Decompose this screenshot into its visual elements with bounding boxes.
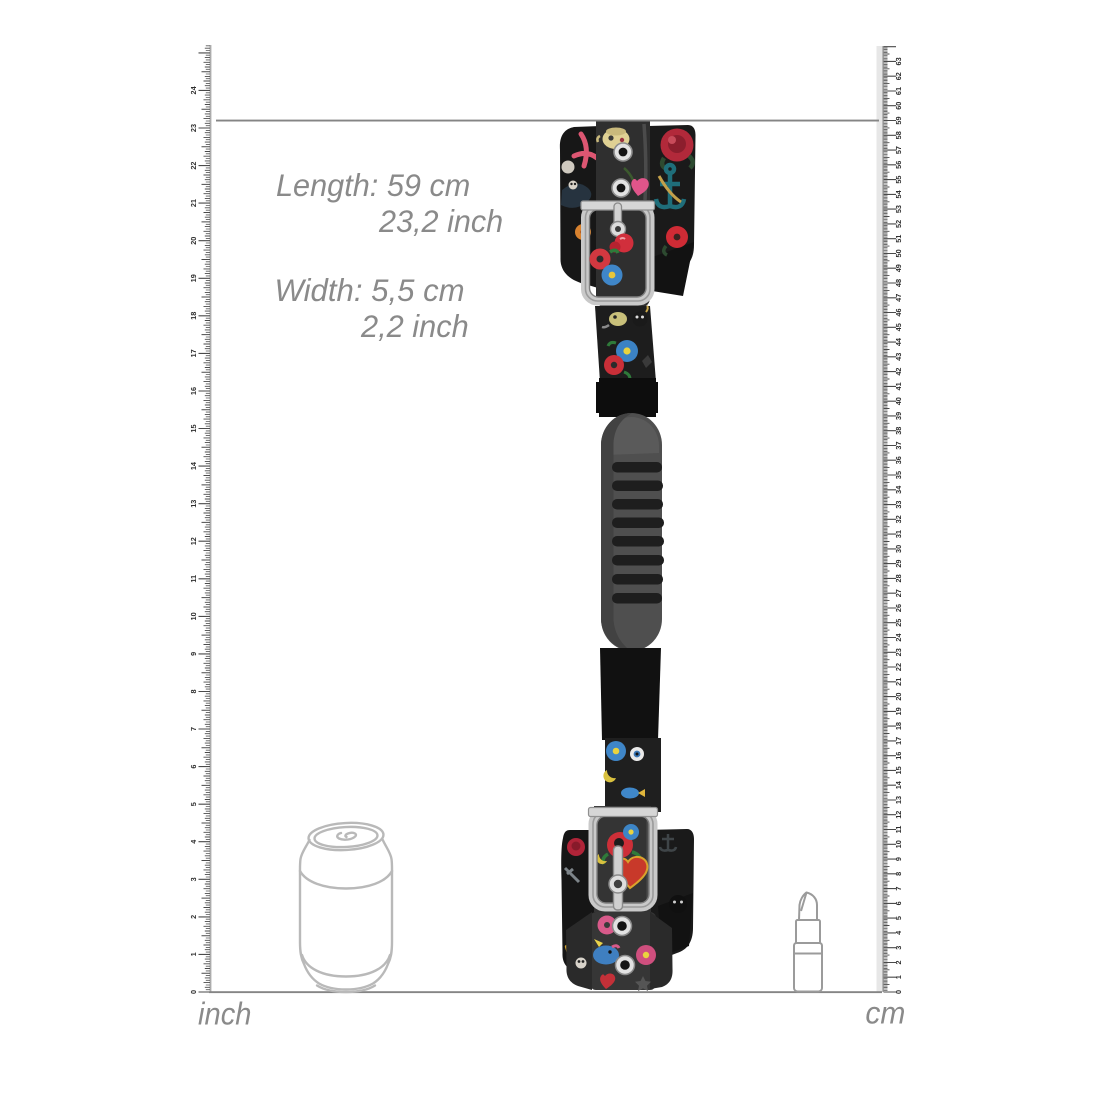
svg-text:9: 9	[189, 652, 198, 656]
svg-text:6: 6	[894, 901, 903, 905]
svg-text:1: 1	[894, 975, 903, 979]
svg-text:8: 8	[189, 689, 198, 693]
svg-text:16: 16	[894, 752, 903, 760]
svg-text:3: 3	[189, 877, 198, 881]
svg-text:22: 22	[894, 663, 903, 671]
svg-text:40: 40	[894, 397, 903, 405]
svg-text:34: 34	[894, 485, 903, 494]
svg-text:63: 63	[894, 57, 903, 65]
svg-text:60: 60	[894, 102, 903, 110]
svg-text:47: 47	[894, 294, 903, 302]
svg-text:12: 12	[189, 537, 198, 545]
svg-text:11: 11	[894, 826, 903, 834]
svg-text:44: 44	[894, 337, 903, 346]
svg-text:1: 1	[189, 952, 198, 956]
svg-text:54: 54	[894, 189, 903, 198]
svg-text:29: 29	[894, 560, 903, 568]
svg-text:18: 18	[189, 312, 198, 320]
svg-text:19: 19	[189, 274, 198, 282]
svg-text:24: 24	[894, 633, 903, 642]
svg-text:61: 61	[894, 87, 903, 95]
svg-text:39: 39	[894, 412, 903, 420]
svg-text:0: 0	[894, 990, 903, 994]
svg-text:13: 13	[189, 500, 198, 508]
svg-text:12: 12	[894, 811, 903, 819]
svg-text:23: 23	[189, 124, 198, 132]
svg-text:55: 55	[894, 176, 903, 184]
svg-text:cm: cm	[865, 995, 905, 1031]
svg-text:48: 48	[894, 279, 903, 287]
svg-text:22: 22	[189, 162, 198, 170]
svg-text:57: 57	[894, 146, 903, 154]
svg-text:inch: inch	[198, 998, 251, 1032]
svg-text:59: 59	[894, 116, 903, 124]
svg-text:41: 41	[894, 382, 903, 390]
svg-text:7: 7	[894, 887, 903, 891]
svg-text:35: 35	[894, 471, 903, 479]
svg-text:31: 31	[894, 530, 903, 538]
svg-text:15: 15	[189, 424, 198, 432]
svg-text:17: 17	[894, 737, 903, 745]
svg-text:7: 7	[189, 727, 198, 731]
svg-text:2,2 inch: 2,2 inch	[360, 309, 469, 344]
svg-text:43: 43	[894, 353, 903, 361]
svg-text:53: 53	[894, 205, 903, 213]
svg-text:49: 49	[894, 264, 903, 272]
svg-text:46: 46	[894, 308, 903, 316]
svg-text:2: 2	[894, 960, 903, 964]
svg-text:2: 2	[189, 915, 198, 919]
svg-text:20: 20	[189, 237, 198, 245]
svg-text:52: 52	[894, 220, 903, 228]
svg-text:10: 10	[894, 840, 903, 848]
svg-text:33: 33	[894, 501, 903, 509]
svg-text:38: 38	[894, 427, 903, 435]
svg-text:42: 42	[894, 368, 903, 376]
svg-text:27: 27	[894, 589, 903, 597]
svg-text:8: 8	[894, 872, 903, 876]
svg-text:Length: 59 cm: Length: 59 cm	[276, 168, 470, 203]
svg-text:5: 5	[189, 802, 198, 806]
svg-text:15: 15	[894, 766, 903, 774]
svg-text:19: 19	[894, 707, 903, 715]
svg-text:50: 50	[894, 249, 903, 257]
svg-text:25: 25	[894, 619, 903, 627]
svg-text:11: 11	[189, 575, 198, 583]
svg-text:30: 30	[894, 545, 903, 553]
svg-text:36: 36	[894, 456, 903, 464]
svg-text:21: 21	[189, 199, 198, 207]
svg-text:24: 24	[189, 85, 198, 94]
svg-text:18: 18	[894, 722, 903, 730]
svg-text:Width: 5,5 cm: Width: 5,5 cm	[275, 273, 465, 308]
svg-text:14: 14	[894, 780, 903, 789]
svg-text:56: 56	[894, 161, 903, 169]
svg-text:14: 14	[189, 461, 198, 470]
svg-text:45: 45	[894, 323, 903, 331]
svg-text:62: 62	[894, 72, 903, 80]
svg-text:0: 0	[189, 990, 198, 994]
svg-text:58: 58	[894, 131, 903, 139]
svg-text:23: 23	[894, 648, 903, 656]
svg-text:26: 26	[894, 604, 903, 612]
svg-text:21: 21	[894, 678, 903, 686]
svg-text:17: 17	[189, 349, 198, 357]
svg-text:5: 5	[894, 916, 903, 920]
svg-text:10: 10	[189, 612, 198, 620]
svg-text:32: 32	[894, 515, 903, 523]
svg-text:37: 37	[894, 441, 903, 449]
svg-text:16: 16	[189, 387, 198, 395]
svg-text:6: 6	[189, 765, 198, 769]
svg-text:3: 3	[894, 946, 903, 950]
svg-text:20: 20	[894, 693, 903, 701]
svg-text:28: 28	[894, 574, 903, 582]
svg-text:51: 51	[894, 235, 903, 243]
svg-text:23,2 inch: 23,2 inch	[378, 204, 503, 239]
svg-text:9: 9	[894, 857, 903, 861]
svg-text:13: 13	[894, 796, 903, 804]
